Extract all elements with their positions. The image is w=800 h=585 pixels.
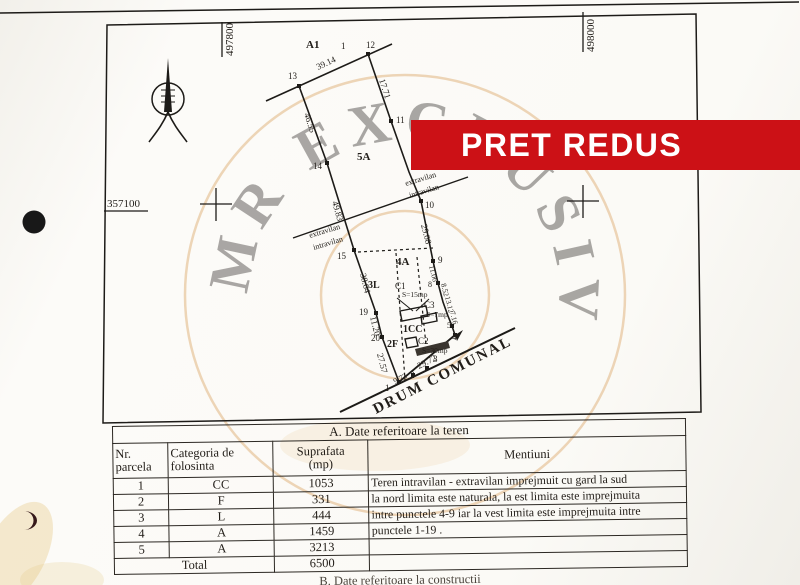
point-label: 1 [341,41,346,51]
table-cell-nr: 5 [114,542,169,559]
table-cell-cat: L [169,508,274,525]
point-label: 3 [433,354,438,364]
point-label: 19 [359,307,369,317]
point-label: 9 [438,255,443,265]
grid-cross [567,185,599,218]
grid-cross [200,188,232,221]
col-header-suprafata: Suprafata (mp) [273,440,369,476]
parcel-label: 4A [396,256,410,268]
building-label: C3 [424,300,435,310]
building-area-label: S=15mp [402,290,428,299]
table-cell-cat: F [168,492,273,509]
building-c2 [405,337,418,348]
point-label: 20 [371,333,381,343]
land-data-table: A. Date referitoare la teren Nr. parcela… [112,418,688,575]
total-label: Total [114,556,274,574]
table-cell-sup: 3213 [274,539,369,556]
length-label: 29.08 [419,223,434,246]
length-label: 27.57 [375,352,390,375]
point-label: 8 [428,280,432,289]
table-cell-sup: 1459 [274,523,369,540]
point-label: 10 [425,200,435,210]
page-frame [0,2,799,423]
north-arrow-icon [149,58,187,142]
table-cell-cat: CC [168,476,273,493]
total-value: 6500 [275,555,370,572]
table-cell-nr: 3 [114,510,169,527]
point-label: 14 [313,161,323,171]
point-label: 11 [396,115,405,125]
north-boundary-line [266,44,392,101]
point-label: 1 [385,383,390,393]
table-cell-sup: 331 [274,491,369,508]
land-data-table-wrap: A. Date referitoare la teren Nr. parcela… [112,418,688,575]
table-cell-cat: A [169,540,274,557]
point-label: 13 [288,71,298,81]
col-header-nr-parcela: Nr. parcela [113,443,169,479]
page-top-edge [0,2,799,13]
length-label: 46.55 [302,112,318,135]
scanned-cadastral-document: MR EXCLUSIV [0,0,800,585]
banner-label: PRET REDUS [461,127,682,164]
point-label: 5 [447,321,451,330]
table-cell-sup: 444 [274,507,369,524]
point-label: 15 [337,251,347,261]
building-label: C2 [418,336,429,346]
parcel-label: 2F [387,339,398,350]
point-label: 4 [452,332,457,342]
coord-label-497800: 497800 [224,23,236,57]
pret-redus-banner: PRET REDUS [411,120,800,170]
coord-label-357100: 357100 [107,198,141,210]
punch-hole [23,211,46,234]
col-header-mentiuni: Mentiuni [368,435,686,474]
table-cell-cat: A [169,524,274,541]
parcel-label: 3L [368,280,380,291]
grid-marks [104,12,599,221]
plan-border [103,14,701,423]
length-label: 9.73 [392,371,409,385]
length-label: 49.83 [330,200,345,223]
building-area-label: S=7mp [426,310,448,319]
coord-label-498000: 498000 [585,19,597,53]
length-label: 39.14 [315,54,338,72]
point-label: 12 [366,40,375,50]
table-cell-nr: 2 [113,494,168,511]
table-cell-nr: 4 [114,526,169,543]
point-label: 2 [410,370,415,380]
table-cell-nr: 1 [113,478,168,495]
table-cell-sup: 1053 [273,475,368,492]
parcel-label: 1CC [403,324,422,335]
parcel-label: 5A [357,151,371,163]
punch-hole-partial [24,511,37,530]
col-header-categoria: Categoria de folosinta [168,441,274,477]
parcel-label: A1 [306,39,319,51]
